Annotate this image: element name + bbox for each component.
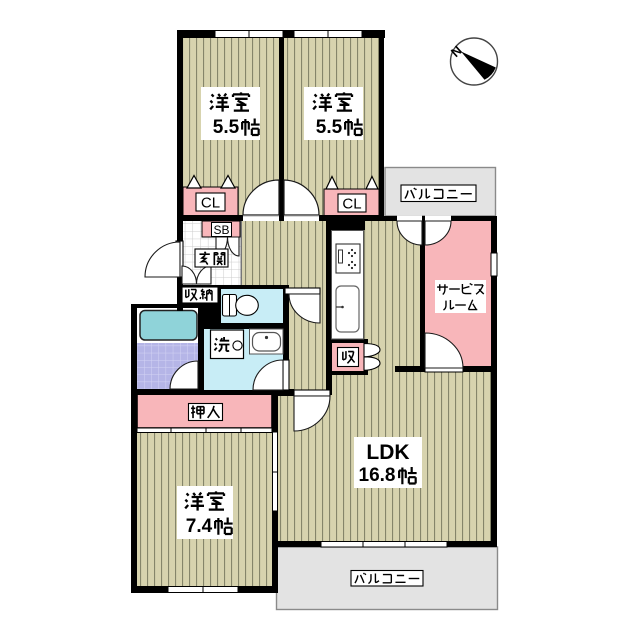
svg-text:LDK: LDK [366, 441, 409, 464]
svg-text:5.5: 5.5 [213, 117, 240, 138]
svg-text:CL: CL [201, 195, 220, 212]
svg-text:5.5: 5.5 [316, 117, 343, 138]
svg-text:16.8: 16.8 [359, 465, 396, 486]
svg-text:7.4: 7.4 [186, 516, 213, 537]
svg-text:SB: SB [213, 223, 229, 237]
svg-text:CL: CL [342, 196, 361, 213]
